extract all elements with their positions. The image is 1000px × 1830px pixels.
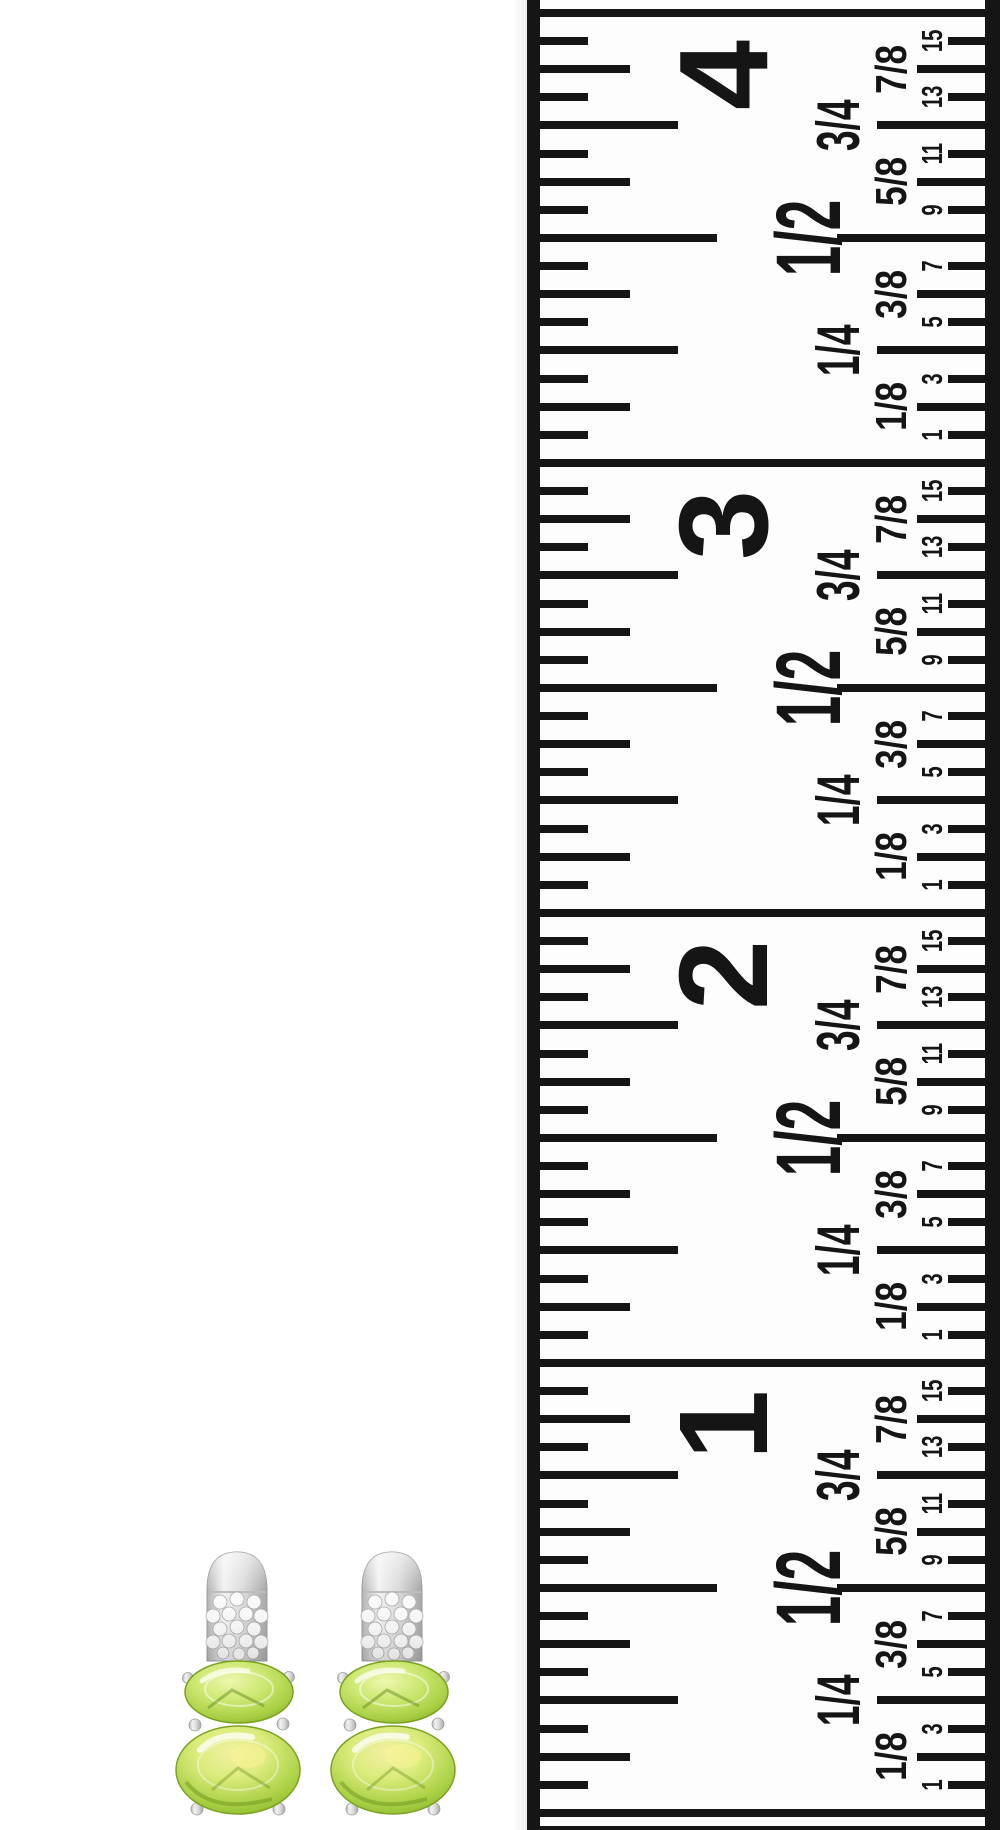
tick-left-quarter: [527, 122, 678, 130]
tick-left-quarter: [527, 572, 678, 580]
tick-right-quarter: [877, 347, 1000, 355]
tick-left-sixteenth: [527, 768, 588, 776]
tick-left-quarter: [527, 1472, 678, 1480]
tick-left-sixteenth: [527, 1275, 588, 1283]
tick-right-sixteenth: [948, 93, 1000, 101]
tick-right-sixteenth: [948, 375, 1000, 383]
tick-right-quarter: [877, 572, 1000, 580]
tick-right-quarter: [877, 122, 1000, 130]
tick-right-eighth: [917, 965, 1000, 973]
tick-right-eighth: [917, 1753, 1000, 1761]
tick-left-eighth: [527, 65, 630, 73]
tick-right-sixteenth: [948, 1668, 1000, 1676]
tick-right-sixteenth: [948, 1781, 1000, 1789]
zero-line: [527, 1809, 1000, 1817]
tick-right-eighth: [917, 853, 1000, 861]
tick-left-eighth: [527, 1303, 630, 1311]
tick-right-eighth: [917, 178, 1000, 186]
tick-right-quarter: [877, 1472, 1000, 1480]
tick-right-eighth: [917, 740, 1000, 748]
tick-right-half: [837, 684, 1000, 692]
tick-right-sixteenth: [948, 1218, 1000, 1226]
tick-left-eighth: [527, 1415, 630, 1423]
tick-right-sixteenth: [948, 1556, 1000, 1564]
tick-left-sixteenth: [527, 150, 588, 158]
tick-left-sixteenth: [527, 1387, 588, 1395]
tick-left-sixteenth: [527, 1106, 588, 1114]
tick-left-sixteenth: [527, 1162, 588, 1170]
tick-left-sixteenth: [527, 1612, 588, 1620]
tape-edge-shadow: [512, 0, 528, 1830]
tick-left-quarter: [527, 1247, 678, 1255]
tick-right-sixteenth: [948, 431, 1000, 439]
inch-line: [527, 1359, 1000, 1367]
tick-left-sixteenth: [527, 375, 588, 383]
tick-right-half: [837, 1134, 1000, 1142]
tick-left-eighth: [527, 1078, 630, 1086]
earrings-photo: [150, 1528, 480, 1830]
tape-bottom-cap: [527, 1826, 1000, 1830]
tick-left-sixteenth: [527, 600, 588, 608]
inch-line: [527, 9, 1000, 17]
tick-left-quarter: [527, 797, 678, 805]
tick-right-sixteenth: [948, 993, 1000, 1001]
tick-right-eighth: [917, 1640, 1000, 1648]
tick-left-sixteenth: [527, 937, 588, 945]
tick-right-quarter: [877, 1247, 1000, 1255]
tick-left-eighth: [527, 853, 630, 861]
tick-right-eighth: [917, 515, 1000, 523]
tick-left-quarter: [527, 1697, 678, 1705]
tick-left-eighth: [527, 1640, 630, 1648]
tick-right-sixteenth: [948, 1331, 1000, 1339]
tick-left-sixteenth: [527, 825, 588, 833]
tick-right-eighth: [917, 1415, 1000, 1423]
tick-left-sixteenth: [527, 1725, 588, 1733]
product-photo: 123411/831/453/871/295/8113/4137/81511/8…: [0, 0, 1000, 1830]
tick-left-eighth: [527, 403, 630, 411]
tick-left-eighth: [527, 178, 630, 186]
tick-left-eighth: [527, 290, 630, 298]
tick-right-sixteenth: [948, 712, 1000, 720]
tick-left-quarter: [527, 1022, 678, 1030]
tick-left-half: [527, 1134, 717, 1142]
tick-left-sixteenth: [527, 1556, 588, 1564]
tick-right-sixteenth: [948, 487, 1000, 495]
tick-left-sixteenth: [527, 1218, 588, 1226]
tick-right-sixteenth: [948, 937, 1000, 945]
tick-right-sixteenth: [948, 656, 1000, 664]
tick-right-sixteenth: [948, 1106, 1000, 1114]
tick-left-sixteenth: [527, 881, 588, 889]
tick-right-sixteenth: [948, 825, 1000, 833]
tick-right-sixteenth: [948, 1725, 1000, 1733]
tick-left-sixteenth: [527, 431, 588, 439]
tick-right-sixteenth: [948, 150, 1000, 158]
tick-right-quarter: [877, 1022, 1000, 1030]
tick-right-eighth: [917, 1190, 1000, 1198]
tick-left-sixteenth: [527, 656, 588, 664]
tick-left-sixteenth: [527, 1050, 588, 1058]
tick-left-eighth: [527, 740, 630, 748]
tick-left-sixteenth: [527, 487, 588, 495]
tick-right-eighth: [917, 403, 1000, 411]
tick-left-sixteenth: [527, 1443, 588, 1451]
tick-left-quarter: [527, 347, 678, 355]
tick-right-sixteenth: [948, 1443, 1000, 1451]
tick-left-eighth: [527, 515, 630, 523]
tick-left-half: [527, 234, 717, 242]
tick-left-sixteenth: [527, 1781, 588, 1789]
tick-right-sixteenth: [948, 881, 1000, 889]
tick-left-sixteenth: [527, 1500, 588, 1508]
tick-left-sixteenth: [527, 262, 588, 270]
tick-right-eighth: [917, 65, 1000, 73]
tick-right-sixteenth: [948, 1500, 1000, 1508]
tick-left-half: [527, 1584, 717, 1592]
tick-right-half: [837, 1584, 1000, 1592]
tick-left-sixteenth: [527, 318, 588, 326]
tick-right-sixteenth: [948, 1275, 1000, 1283]
tick-right-eighth: [917, 628, 1000, 636]
earring-left: [176, 1552, 300, 1815]
tick-right-sixteenth: [948, 543, 1000, 551]
tick-right-sixteenth: [948, 768, 1000, 776]
tick-left-sixteenth: [527, 712, 588, 720]
tick-left-sixteenth: [527, 1331, 588, 1339]
tick-left-sixteenth: [527, 93, 588, 101]
tick-left-half: [527, 684, 717, 692]
tick-right-eighth: [917, 1528, 1000, 1536]
tick-left-eighth: [527, 1753, 630, 1761]
tick-right-sixteenth: [948, 1162, 1000, 1170]
tick-left-eighth: [527, 628, 630, 636]
tick-left-sixteenth: [527, 993, 588, 1001]
tick-right-eighth: [917, 1303, 1000, 1311]
tick-left-sixteenth: [527, 206, 588, 214]
tick-left-eighth: [527, 965, 630, 973]
tick-right-sixteenth: [948, 600, 1000, 608]
earring-right: [331, 1552, 455, 1815]
tick-right-eighth: [917, 1078, 1000, 1086]
tick-right-sixteenth: [948, 1387, 1000, 1395]
tick-left-eighth: [527, 1528, 630, 1536]
inch-line: [527, 909, 1000, 917]
tape-measure: 123411/831/453/871/295/8113/4137/81511/8…: [527, 0, 1000, 1830]
tick-right-quarter: [877, 797, 1000, 805]
tick-right-half: [837, 234, 1000, 242]
tick-right-sixteenth: [948, 206, 1000, 214]
tick-right-sixteenth: [948, 37, 1000, 45]
tick-left-sixteenth: [527, 543, 588, 551]
tick-left-sixteenth: [527, 1668, 588, 1676]
tick-right-sixteenth: [948, 318, 1000, 326]
tick-right-sixteenth: [948, 1050, 1000, 1058]
inch-line: [527, 459, 1000, 467]
tick-left-eighth: [527, 1190, 630, 1198]
tick-right-sixteenth: [948, 262, 1000, 270]
tick-right-sixteenth: [948, 1612, 1000, 1620]
tick-right-quarter: [877, 1697, 1000, 1705]
tick-left-sixteenth: [527, 37, 588, 45]
tick-right-eighth: [917, 290, 1000, 298]
